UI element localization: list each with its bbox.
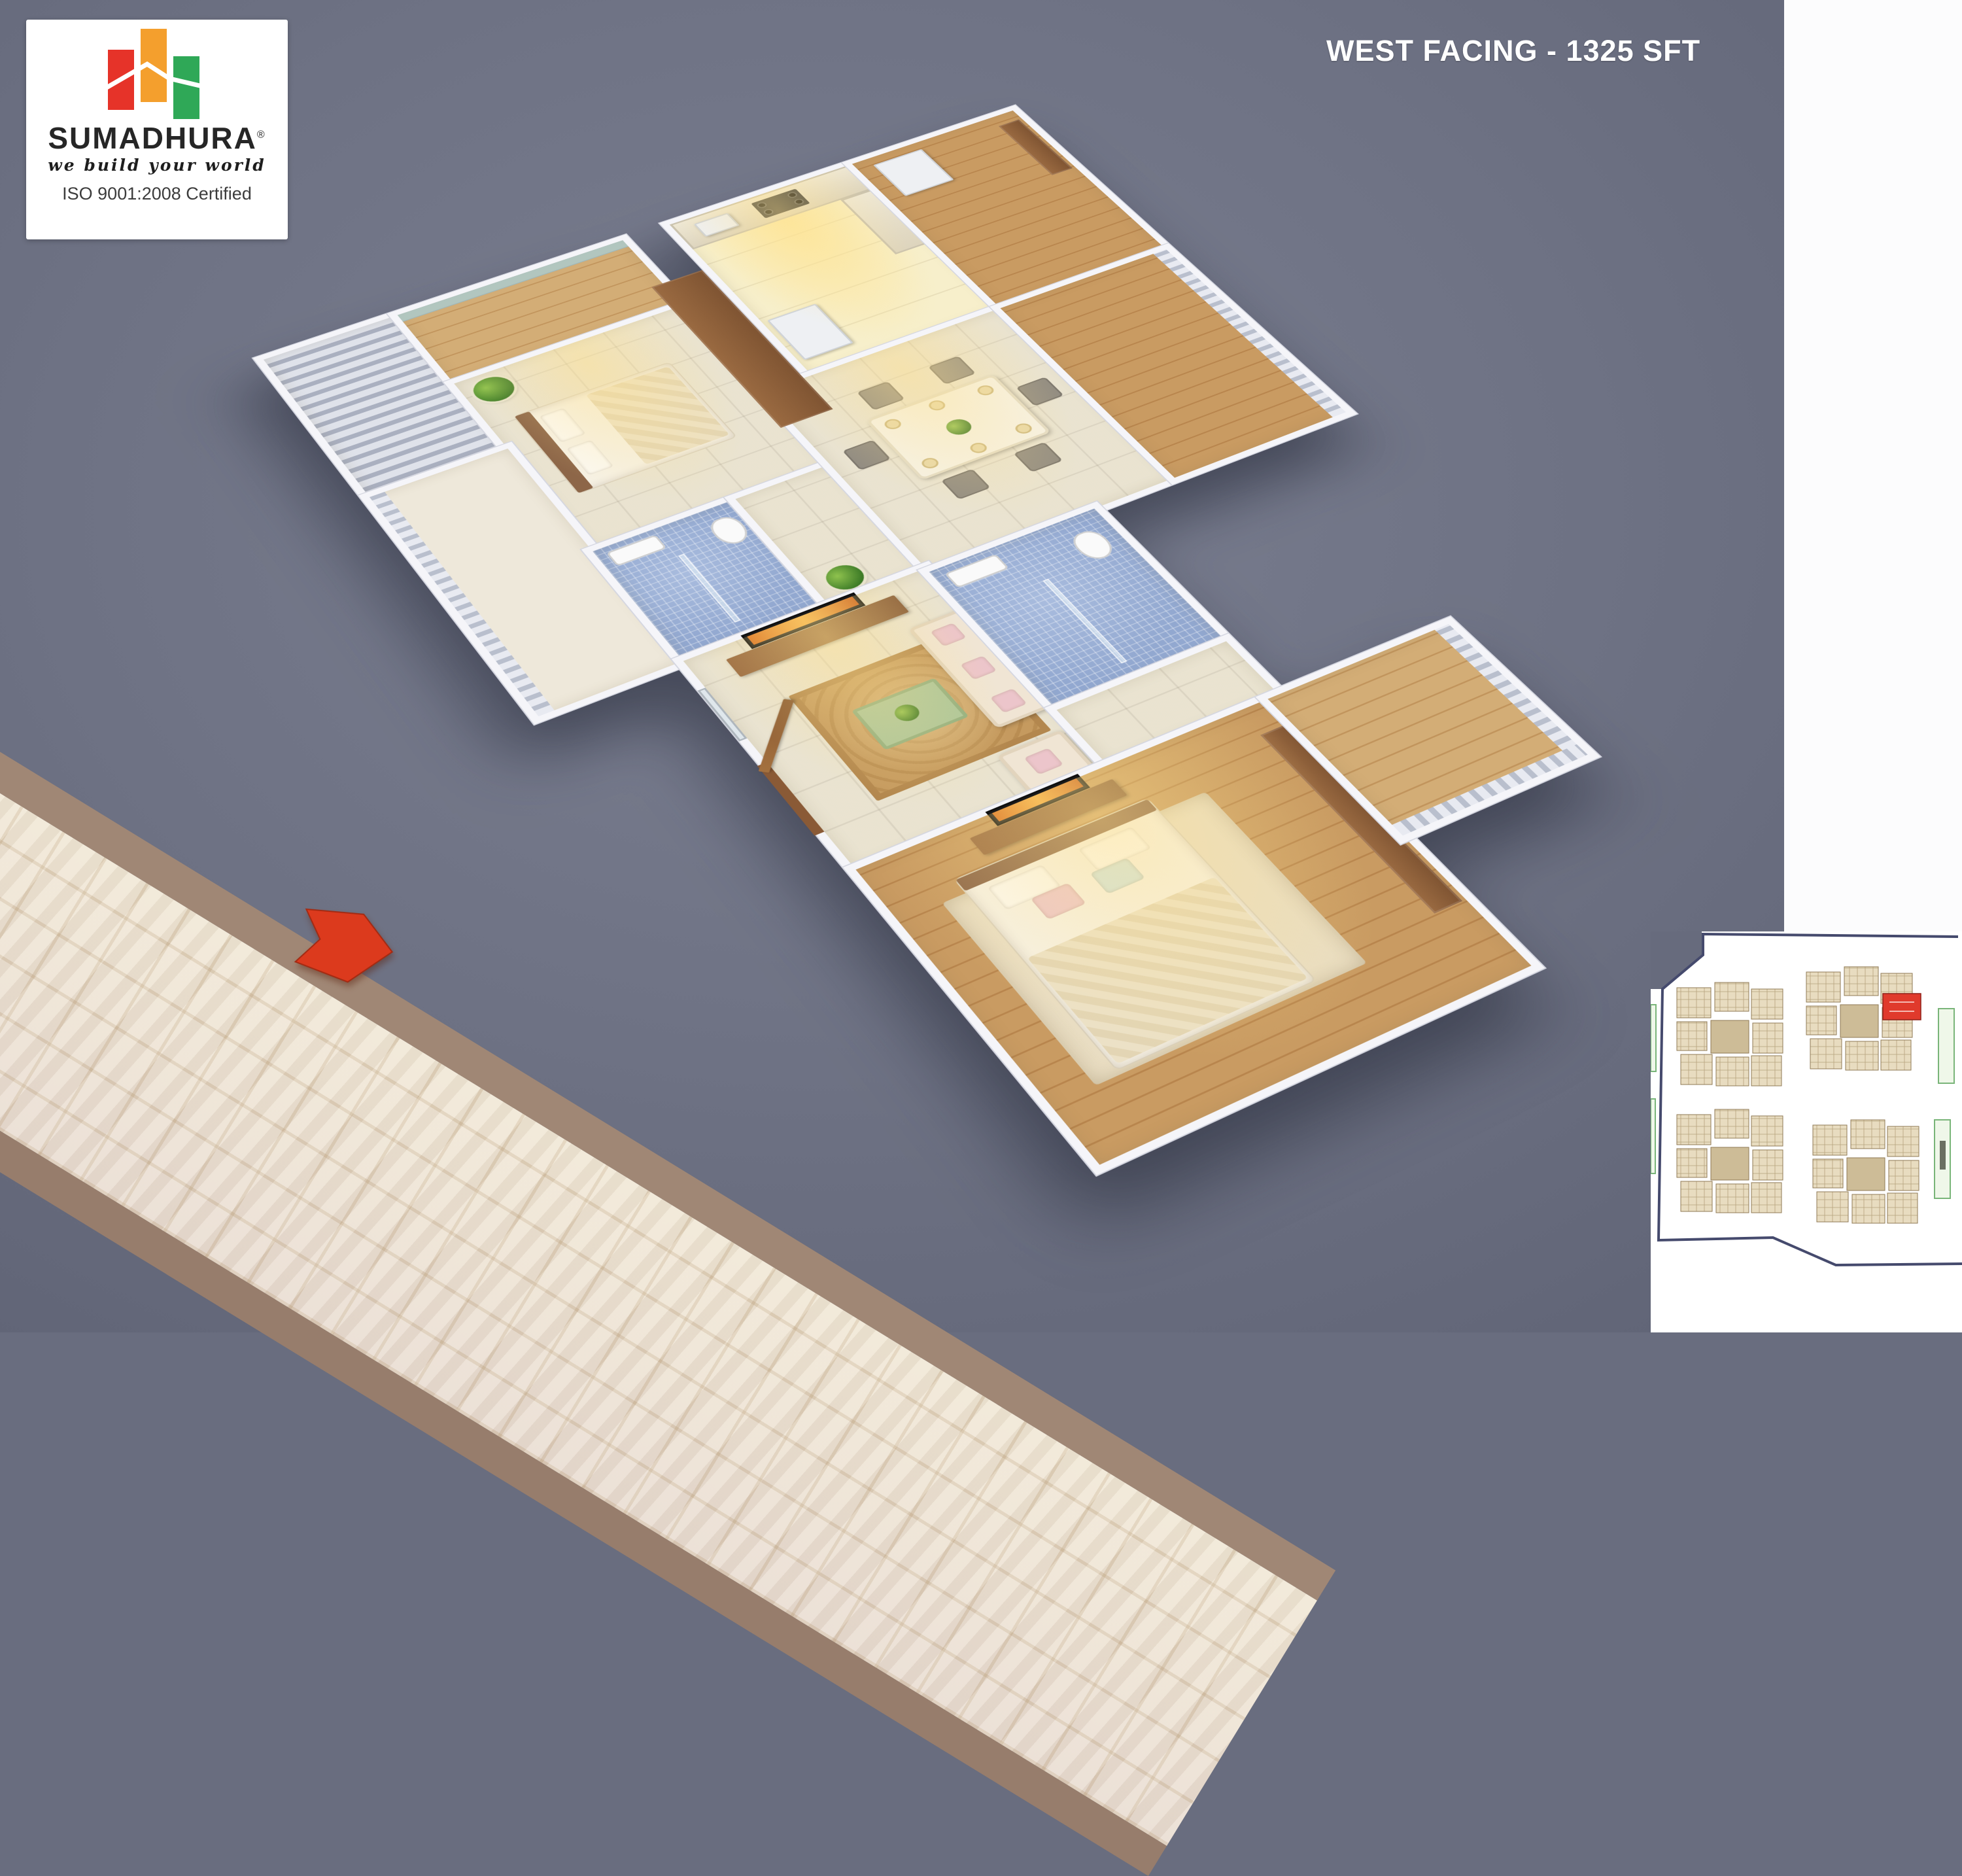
certification-text: ISO 9001:2008 Certified xyxy=(26,184,288,204)
tower-cluster-1 xyxy=(1677,982,1783,1086)
logo-card: SUMADHURA® we build your world ISO 9001:… xyxy=(26,20,288,239)
balcony-railing xyxy=(1392,744,1588,836)
shower-partition xyxy=(680,555,739,621)
dining-chair xyxy=(941,469,991,500)
washing-machine xyxy=(873,149,954,196)
registered-mark: ® xyxy=(257,130,266,141)
brand-logo-icon xyxy=(108,34,206,119)
cushion xyxy=(1024,748,1063,774)
stove xyxy=(751,188,810,218)
dining-chair xyxy=(1016,377,1064,406)
facing-title: WEST FACING - 1325 SFT xyxy=(1326,34,1700,68)
entrance-arrow-icon xyxy=(290,903,400,991)
duvet xyxy=(586,366,730,464)
tower-cluster-3 xyxy=(1677,1109,1783,1213)
table-centerpiece xyxy=(942,417,976,438)
window-west xyxy=(698,687,748,741)
shower-partition xyxy=(1044,580,1126,662)
dining-chair xyxy=(842,440,891,470)
brand-name: SUMADHURA® xyxy=(26,123,288,153)
brand-tagline: we build your world xyxy=(26,156,288,175)
toilet xyxy=(1067,527,1119,563)
dining-chair xyxy=(928,356,976,385)
bed xyxy=(515,363,736,493)
washbasin xyxy=(606,534,667,566)
washbasin xyxy=(944,554,1009,588)
cushion xyxy=(960,655,997,680)
entrance-door-frame xyxy=(757,762,825,835)
plant xyxy=(467,372,521,406)
sink xyxy=(694,213,740,237)
logo-roofline xyxy=(96,52,220,98)
refrigerator xyxy=(767,304,853,360)
cushion xyxy=(990,688,1027,713)
entrance-door xyxy=(759,699,795,773)
balcony-railing xyxy=(1435,624,1588,761)
site-key-plan xyxy=(1651,931,1962,1332)
dining-chair xyxy=(857,381,905,411)
highlighted-unit xyxy=(1883,994,1921,1020)
dining-chair xyxy=(1013,442,1063,472)
tower-cluster-4 xyxy=(1813,1120,1919,1223)
cushion xyxy=(930,623,967,646)
plant xyxy=(890,702,923,724)
